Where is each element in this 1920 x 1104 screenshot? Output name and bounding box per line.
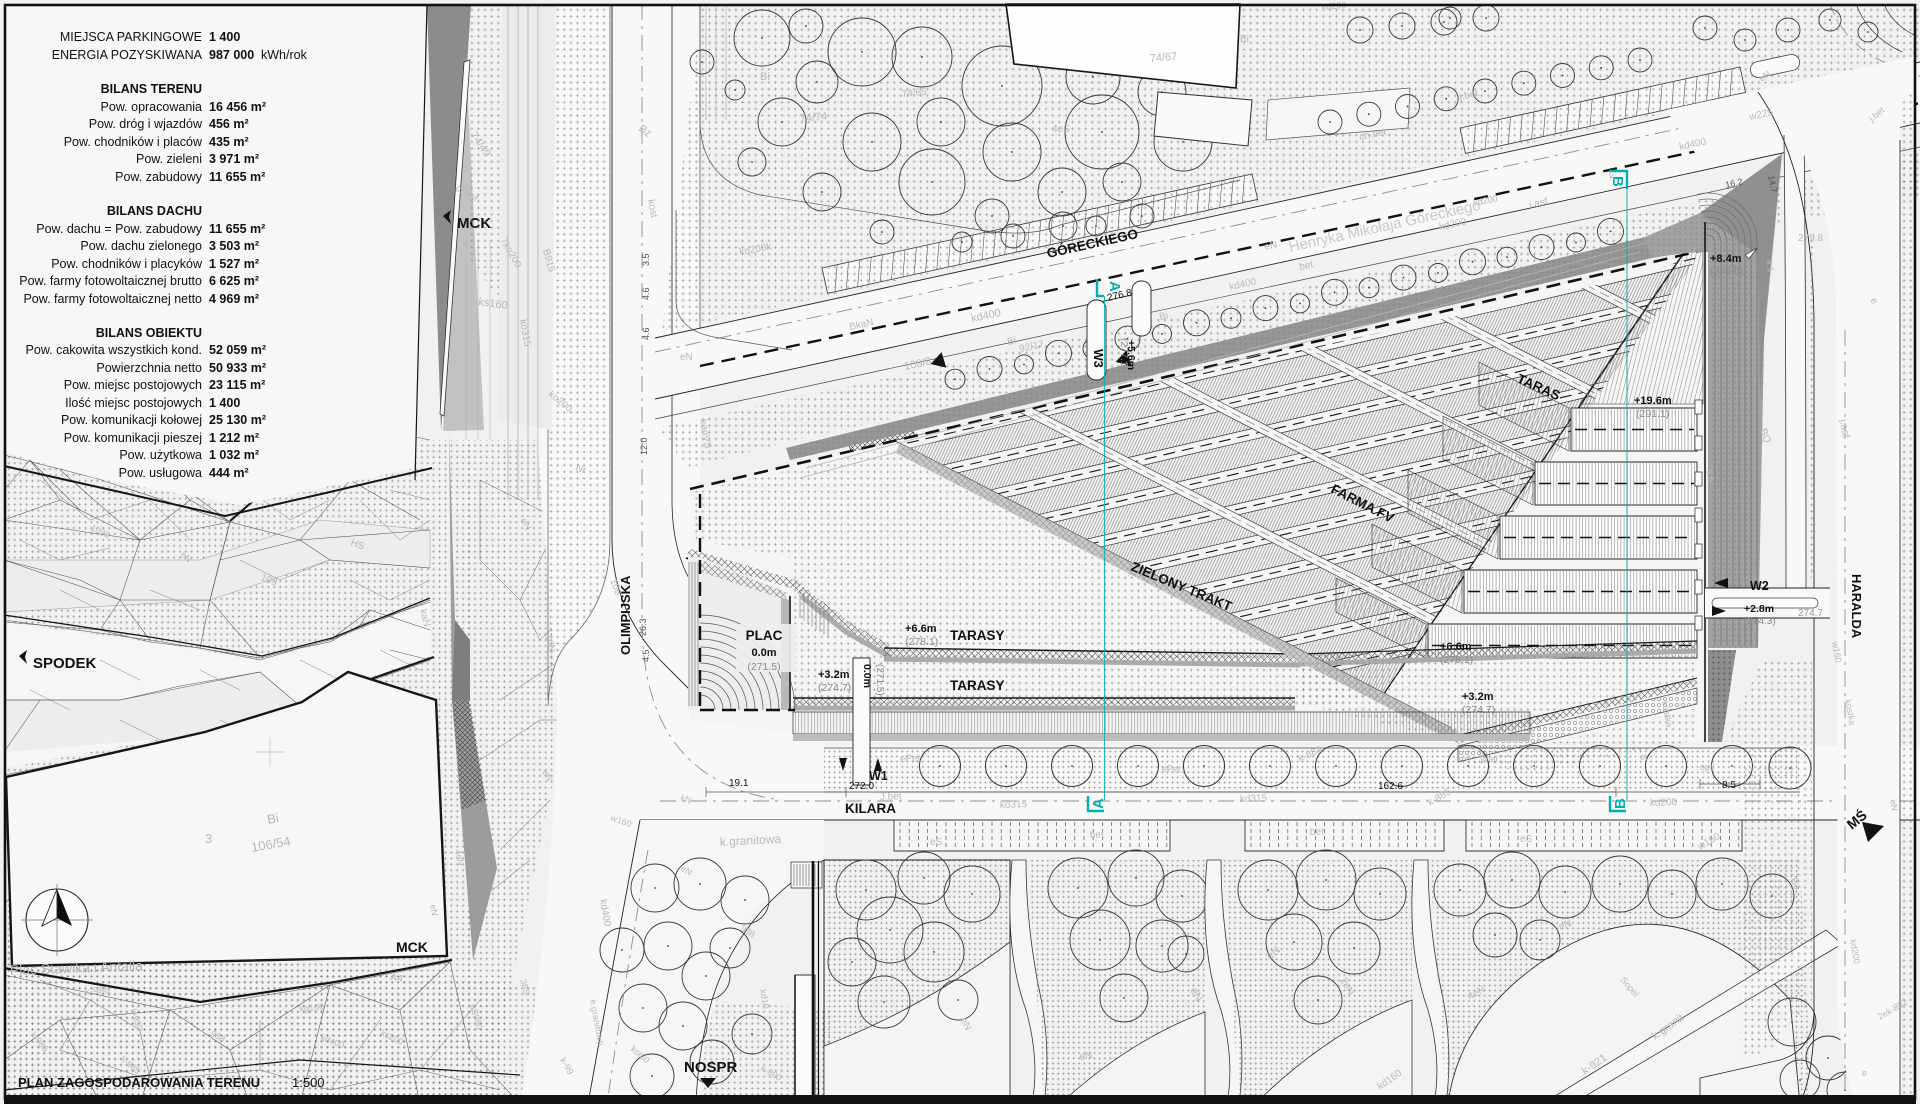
svg-text:NOSPR: NOSPR (684, 1059, 738, 1076)
svg-text:ko315: ko315 (1000, 799, 1028, 811)
svg-text:Pow. usługowa: Pow. usługowa (119, 466, 202, 480)
svg-text:Pow. zieleni: Pow. zieleni (136, 152, 202, 166)
svg-text:Pow. dróg i wjazdów: Pow. dróg i wjazdów (89, 117, 203, 131)
svg-text:Pow. dachu zielonego: Pow. dachu zielonego (80, 239, 202, 253)
svg-text:kd200: kd200 (1650, 797, 1678, 809)
svg-text:Pow. zabudowy: Pow. zabudowy (115, 170, 203, 184)
svg-text:274.7: 274.7 (1798, 608, 1823, 619)
svg-text:12.0: 12.0 (639, 437, 649, 455)
svg-text:TARASY: TARASY (950, 678, 1005, 693)
svg-text:opti: opti (1700, 762, 1715, 772)
svg-text:kWh/rok: kWh/rok (261, 48, 308, 62)
svg-text:4.6: 4.6 (641, 287, 651, 300)
svg-text:16 456 m²: 16 456 m² (209, 100, 266, 114)
svg-text:(278.1): (278.1) (905, 636, 938, 648)
svg-text:Pow. opracowania: Pow. opracowania (101, 100, 203, 114)
svg-text:bet: bet (1310, 827, 1324, 838)
svg-text:KILARA: KILARA (845, 801, 896, 816)
svg-text:Powierzchnia netto: Powierzchnia netto (96, 361, 202, 375)
svg-text:11 655 m²: 11 655 m² (209, 170, 265, 184)
svg-text:+6.6m: +6.6m (905, 623, 937, 635)
svg-text:eS: eS (1520, 834, 1533, 845)
svg-text:kd315: kd315 (1240, 793, 1268, 805)
svg-text:et: et (1640, 752, 1648, 762)
svg-text:4.5: 4.5 (641, 649, 651, 662)
svg-text:(279.9): (279.9) (1710, 266, 1743, 278)
svg-text:(274.7): (274.7) (818, 682, 851, 694)
svg-text:+3.2m: +3.2m (1462, 691, 1494, 703)
svg-text:(271.5): (271.5) (874, 664, 885, 696)
svg-text:eS: eS (930, 837, 943, 848)
svg-text:+2.8m: +2.8m (1744, 603, 1774, 615)
svg-text:6 625 m²: 6 625 m² (209, 274, 259, 288)
svg-text:3: 3 (205, 831, 212, 846)
svg-text:987 000: 987 000 (209, 48, 254, 62)
svg-text:(278.1): (278.1) (1440, 654, 1473, 666)
svg-text:50 933 m²: 50 933 m² (209, 361, 266, 375)
svg-text:J.bet: J.bet (880, 791, 902, 803)
svg-text:eN: eN (680, 352, 693, 363)
svg-text:1 527 m²: 1 527 m² (209, 257, 259, 271)
svg-text:Pow. cakowita wszystkich kond.: Pow. cakowita wszystkich kond. (26, 343, 202, 357)
svg-text:23 115 m²: 23 115 m² (209, 378, 265, 392)
svg-text:W3: W3 (1091, 349, 1105, 368)
svg-text:74/67: 74/67 (1149, 51, 1177, 65)
svg-text:Pow. użytkowa: Pow. użytkowa (119, 448, 202, 462)
svg-text:k-988: k-988 (84, 985, 110, 998)
svg-text:1 400: 1 400 (209, 396, 240, 410)
svg-text:Ilość miejsc postojowych: Ilość miejsc postojowych (65, 396, 202, 410)
svg-text:eN: eN (428, 904, 440, 917)
svg-text:3 971 m²: 3 971 m² (209, 152, 259, 166)
svg-text:Pow. miejsc postojowych: Pow. miejsc postojowych (64, 378, 202, 392)
svg-text:ePet: ePet (900, 753, 921, 765)
svg-text:BILANS TERENU: BILANS TERENU (101, 82, 202, 96)
svg-text:(277.1): (277.1) (1118, 338, 1129, 370)
svg-text:+19.6m: +19.6m (1634, 395, 1672, 407)
svg-text:+8.4m: +8.4m (1710, 253, 1742, 265)
svg-text:Pow. komunikacji pieszej: Pow. komunikacji pieszej (64, 431, 202, 445)
svg-text:A4: A4 (389, 972, 403, 985)
svg-text:1 400: 1 400 (209, 30, 240, 44)
svg-text:Wiel: Wiel (1480, 754, 1498, 764)
svg-text:BILANS OBIEKTU: BILANS OBIEKTU (96, 326, 202, 340)
svg-text:SPODEK: SPODEK (33, 655, 97, 672)
svg-text:74/65: 74/65 (901, 87, 927, 100)
svg-text:W2: W2 (1750, 579, 1769, 593)
svg-text:162.6: 162.6 (1378, 781, 1403, 792)
svg-text:0.0m: 0.0m (861, 664, 873, 688)
svg-text:52 059 m²: 52 059 m² (209, 343, 266, 357)
svg-text:ENERGIA POZYSKIWANA: ENERGIA POZYSKIWANA (52, 48, 203, 62)
svg-text:4 969 m²: 4 969 m² (209, 292, 259, 306)
svg-text:(271.5): (271.5) (747, 661, 780, 673)
svg-text:A: A (1090, 798, 1107, 809)
svg-text:TARASY: TARASY (950, 628, 1005, 643)
svg-text:1:500: 1:500 (292, 1075, 325, 1090)
svg-text:272.0: 272.0 (849, 781, 874, 792)
svg-text:HARALDA: HARALDA (1849, 574, 1864, 639)
svg-text:25 130 m²: 25 130 m² (209, 413, 266, 427)
svg-text:3 503 m²: 3 503 m² (209, 239, 259, 253)
svg-text:Bi: Bi (760, 71, 770, 83)
svg-text:Pow. komunikacji kołowej: Pow. komunikacji kołowej (61, 413, 202, 427)
svg-text:MIEJSCA PARKINGOWE: MIEJSCA PARKINGOWE (60, 30, 202, 44)
svg-text:A: A (1106, 281, 1123, 292)
svg-text:26.3: 26.3 (638, 618, 648, 636)
svg-text:MCK: MCK (396, 939, 428, 955)
svg-text:444 m²: 444 m² (209, 466, 249, 480)
svg-text:eN: eN (1888, 799, 1900, 812)
svg-text:B: B (1612, 798, 1629, 809)
svg-text:Pow. dachu = Pow. zabudowy: Pow. dachu = Pow. zabudowy (36, 222, 202, 236)
svg-text:+6.6m: +6.6m (1440, 641, 1472, 653)
svg-text:456 m²: 456 m² (209, 117, 249, 131)
svg-text:11 655 m²: 11 655 m² (209, 222, 265, 236)
svg-text:9.6: 9.6 (1704, 469, 1716, 483)
svg-text:279.8: 279.8 (1798, 233, 1823, 244)
svg-text:(274.3): (274.3) (1744, 616, 1776, 627)
svg-text:19.1: 19.1 (729, 778, 749, 789)
svg-text:4.1: 4.1 (1764, 259, 1776, 273)
svg-text:435 m²: 435 m² (209, 135, 249, 149)
svg-text:4eS: 4eS (1052, 124, 1070, 135)
svg-text:Pow. farmy fotowoltaicznej net: Pow. farmy fotowoltaicznej netto (23, 292, 202, 306)
svg-text:4.6: 4.6 (641, 327, 651, 340)
svg-text:e: e (1862, 1068, 1867, 1078)
svg-text:1 032 m²: 1 032 m² (209, 448, 259, 462)
svg-text:Bi: Bi (1240, 34, 1249, 45)
svg-text:PLAN ZAGOSPODAROWANIA TERENU: PLAN ZAGOSPODAROWANIA TERENU (18, 1075, 260, 1090)
svg-text:0.0m: 0.0m (751, 647, 776, 659)
svg-text:eN: eN (1079, 1050, 1094, 1063)
svg-text:Pow. chodników i placyków: Pow. chodników i placyków (51, 257, 203, 271)
svg-text:BILANS DACHU: BILANS DACHU (107, 204, 202, 218)
svg-text:8.5: 8.5 (1722, 780, 1736, 791)
svg-text:PLAC: PLAC (746, 628, 783, 643)
svg-text:ePet: ePet (1162, 764, 1181, 774)
svg-text:Pow. farmy fotowoltaicznej bru: Pow. farmy fotowoltaicznej brutto (19, 274, 202, 288)
svg-text:+3.2m: +3.2m (818, 669, 850, 681)
svg-text:74/74: 74/74 (799, 111, 827, 125)
svg-text:bet: bet (1090, 830, 1104, 841)
svg-text:Pow. chodników i placów: Pow. chodników i placów (64, 135, 203, 149)
svg-text:3.5: 3.5 (641, 253, 651, 266)
svg-text:1 212 m²: 1 212 m² (209, 431, 259, 445)
svg-text:(291.1): (291.1) (1636, 408, 1669, 420)
